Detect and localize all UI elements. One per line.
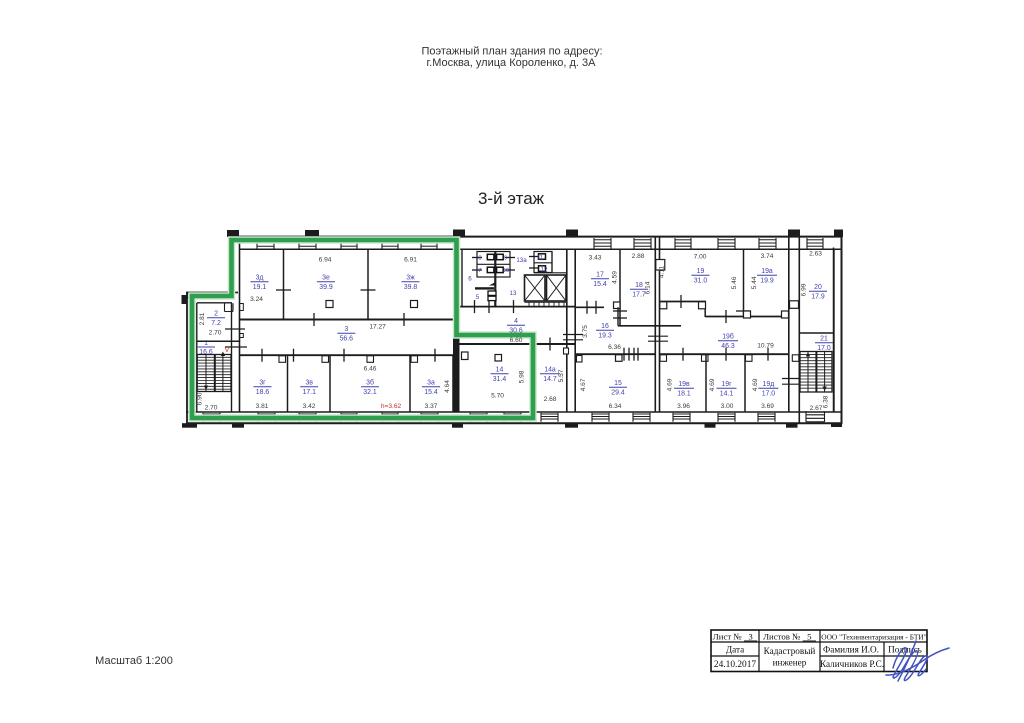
svg-text:6.46: 6.46 <box>364 366 377 373</box>
svg-text:4.11: 4.11 <box>659 265 666 278</box>
svg-text:6.94: 6.94 <box>319 257 332 264</box>
svg-text:3.69: 3.69 <box>761 403 774 410</box>
svg-text:14.7: 14.7 <box>543 376 557 383</box>
svg-text:19б: 19б <box>722 333 734 341</box>
svg-text:2.70: 2.70 <box>205 405 218 412</box>
svg-text:8: 8 <box>478 256 481 262</box>
svg-text:17.27: 17.27 <box>369 324 386 331</box>
svg-text:13: 13 <box>510 290 517 297</box>
svg-text:Дата: Дата <box>726 645 744 655</box>
svg-text:3д: 3д <box>256 275 264 282</box>
svg-text:2.63: 2.63 <box>809 251 822 258</box>
svg-text:3е: 3е <box>322 275 330 282</box>
svg-text:Кадастровый: Кадастровый <box>764 646 816 656</box>
svg-text:6.90: 6.90 <box>197 392 204 405</box>
svg-text:h=3.62: h=3.62 <box>381 403 402 410</box>
svg-text:7: 7 <box>478 268 481 274</box>
svg-text:18.6: 18.6 <box>256 389 270 396</box>
svg-text:14а: 14а <box>544 367 556 374</box>
svg-text:18: 18 <box>635 282 643 289</box>
svg-text:4.59: 4.59 <box>612 271 619 284</box>
svg-text:19г: 19г <box>721 381 732 388</box>
svg-text:3.00: 3.00 <box>721 403 734 410</box>
svg-text:19.3: 19.3 <box>598 332 612 339</box>
svg-text:56.6: 56.6 <box>340 335 354 342</box>
svg-text:5: 5 <box>476 294 480 301</box>
svg-text:г.Москва, улица Короленко, д.: г.Москва, улица Короленко, д. 3А <box>427 57 597 69</box>
svg-text:5.57: 5.57 <box>558 369 565 382</box>
svg-text:V: V <box>225 347 230 354</box>
svg-text:31.0: 31.0 <box>694 277 708 284</box>
svg-text:13а: 13а <box>516 257 527 264</box>
svg-text:6.99: 6.99 <box>801 283 808 296</box>
svg-text:3в: 3в <box>305 380 313 387</box>
svg-text:30.6: 30.6 <box>509 327 523 334</box>
svg-text:3-й этаж: 3-й этаж <box>478 189 545 208</box>
svg-text:3.43: 3.43 <box>589 255 602 262</box>
svg-text:4.67: 4.67 <box>580 378 587 391</box>
svg-text:2.68: 2.68 <box>544 396 557 403</box>
svg-text:14: 14 <box>496 367 504 374</box>
svg-text:16: 16 <box>601 323 609 330</box>
svg-text:4.69: 4.69 <box>667 378 674 391</box>
svg-text:12: 12 <box>541 267 548 274</box>
svg-text:3.37: 3.37 <box>425 403 438 410</box>
svg-text:6.14: 6.14 <box>645 281 652 294</box>
svg-text:4.69: 4.69 <box>709 378 716 391</box>
svg-text:39.8: 39.8 <box>404 284 418 291</box>
svg-text:6: 6 <box>468 276 472 283</box>
svg-text:17.9: 17.9 <box>811 293 825 300</box>
svg-text:2.88: 2.88 <box>632 253 645 260</box>
svg-text:10: 10 <box>503 268 509 274</box>
svg-text:Поэтажный план здания по адрес: Поэтажный план здания по адресу: <box>421 46 602 58</box>
svg-text:5.44: 5.44 <box>751 276 758 289</box>
svg-text:3б: 3б <box>366 379 374 387</box>
svg-text:19.9: 19.9 <box>760 277 774 284</box>
svg-text:6.60: 6.60 <box>510 337 523 344</box>
svg-text:21: 21 <box>820 336 828 343</box>
svg-text:15.4: 15.4 <box>593 281 607 288</box>
svg-text:7.00: 7.00 <box>694 254 707 261</box>
svg-text:3: 3 <box>344 326 348 333</box>
svg-text:18.1: 18.1 <box>677 390 691 397</box>
svg-text:31.4: 31.4 <box>493 376 507 383</box>
svg-text:3.81: 3.81 <box>256 403 269 410</box>
svg-text:4.64: 4.64 <box>444 380 451 393</box>
svg-text:2.67: 2.67 <box>810 405 823 412</box>
svg-text:39.9: 39.9 <box>319 284 333 291</box>
svg-text:2.81: 2.81 <box>199 312 206 325</box>
svg-text:Масштаб 1:200: Масштаб 1:200 <box>95 655 173 667</box>
svg-text:17.0: 17.0 <box>817 345 831 352</box>
svg-text:2.70: 2.70 <box>209 330 222 337</box>
svg-text:11: 11 <box>537 255 544 262</box>
svg-text:Лист № 3: Лист № 3 <box>713 632 757 642</box>
svg-text:3.75: 3.75 <box>582 325 589 338</box>
svg-text:17.0: 17.0 <box>762 390 776 397</box>
svg-text:17: 17 <box>596 272 604 279</box>
svg-text:19: 19 <box>697 268 705 275</box>
svg-text:6.91: 6.91 <box>404 257 417 264</box>
svg-text:24.10.2017: 24.10.2017 <box>714 660 757 670</box>
svg-text:14.1: 14.1 <box>720 390 734 397</box>
svg-text:5.46: 5.46 <box>731 276 738 289</box>
svg-text:6.38: 6.38 <box>823 395 830 408</box>
svg-text:Каличников Р.С.: Каличников Р.С. <box>820 659 884 669</box>
svg-text:15.4: 15.4 <box>424 389 438 396</box>
svg-text:19в: 19в <box>678 381 690 388</box>
svg-text:5.70: 5.70 <box>491 393 504 400</box>
svg-text:3г: 3г <box>259 380 266 387</box>
svg-text:3ж: 3ж <box>406 275 415 282</box>
svg-text:6.36: 6.36 <box>608 344 621 351</box>
svg-text:3а: 3а <box>427 380 435 387</box>
svg-text:7.2: 7.2 <box>211 320 221 327</box>
svg-text:инженер: инженер <box>773 658 807 668</box>
svg-text:3.24: 3.24 <box>250 296 263 303</box>
svg-text:19.1: 19.1 <box>253 284 267 291</box>
svg-text:Фамилия И.О.: Фамилия И.О. <box>823 645 879 655</box>
svg-text:3.42: 3.42 <box>303 403 316 410</box>
svg-text:9: 9 <box>504 256 507 262</box>
svg-text:2: 2 <box>214 311 218 318</box>
svg-text:6.34: 6.34 <box>609 403 622 410</box>
svg-text:16.6: 16.6 <box>199 349 213 356</box>
svg-text:19а: 19а <box>761 268 773 275</box>
svg-text:20: 20 <box>814 284 822 291</box>
svg-text:19д: 19д <box>763 381 775 388</box>
svg-text:5.98: 5.98 <box>519 370 526 383</box>
svg-text:10.79: 10.79 <box>757 343 774 350</box>
svg-text:46.3: 46.3 <box>721 343 735 350</box>
svg-text:1: 1 <box>204 340 208 347</box>
svg-text:3.96: 3.96 <box>677 403 690 410</box>
svg-text:17.1: 17.1 <box>302 389 316 396</box>
svg-text:3.74: 3.74 <box>761 253 774 260</box>
svg-text:32.1: 32.1 <box>363 389 377 396</box>
svg-text:ООО "Техинвентаризация - БТИ": ООО "Техинвентаризация - БТИ" <box>821 632 927 641</box>
svg-text:29.4: 29.4 <box>611 389 625 396</box>
svg-text:15: 15 <box>614 380 622 387</box>
svg-text:4.69: 4.69 <box>752 378 759 391</box>
svg-text:4: 4 <box>514 318 518 325</box>
svg-text:Листов № 5: Листов № 5 <box>763 632 816 642</box>
